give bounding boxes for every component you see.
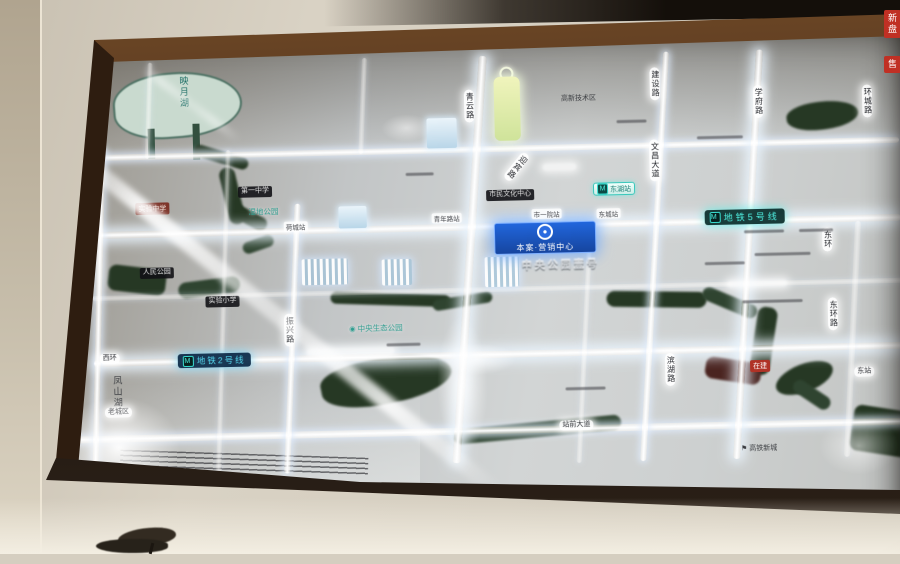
metro-icon: M bbox=[597, 183, 608, 194]
building-landmark bbox=[426, 118, 457, 149]
river-east bbox=[606, 291, 706, 308]
road-v-5 bbox=[640, 52, 669, 462]
district-pill: 老城区 bbox=[105, 407, 132, 418]
station-chip-label: 东湖站 bbox=[610, 183, 631, 193]
road-pill: 西环 bbox=[100, 354, 120, 365]
building-cluster bbox=[302, 258, 349, 285]
park-icon: ◉ bbox=[349, 324, 356, 333]
road-pill: 建设路 bbox=[649, 67, 660, 100]
building-cluster bbox=[338, 206, 366, 229]
embossed-project-name: 中央公园壹号 bbox=[522, 256, 600, 273]
poi-flag-label: ⚑ 高铁新城 bbox=[741, 443, 777, 454]
poi-text: 高铁新城 bbox=[749, 443, 777, 454]
road-pill: 站前大道 bbox=[559, 420, 593, 431]
metro-station-chip: M 东湖站 bbox=[593, 182, 635, 196]
road-pill: 学府路 bbox=[753, 85, 764, 118]
station-label: 市一院站 bbox=[531, 208, 561, 219]
bonsai-decoration bbox=[96, 539, 168, 553]
water-southeast bbox=[848, 404, 900, 459]
road-pill: 青云路 bbox=[464, 89, 475, 122]
photo-of-illuminated-map-display: M 地铁5号线 M 地铁2号线 M 东湖站 本案·营销中心 中央公园壹号 荷城站… bbox=[0, 0, 900, 554]
road-pill: 东环路 bbox=[828, 297, 839, 330]
corner-red-sign: 售 bbox=[884, 56, 900, 73]
project-badge: 本案·营销中心 bbox=[494, 221, 597, 255]
building-cluster bbox=[382, 259, 413, 286]
metro-icon: M bbox=[710, 212, 721, 223]
river-segment bbox=[241, 233, 275, 255]
poi-chip: 第一中学 bbox=[238, 186, 272, 198]
poi-chip: 实验小学 bbox=[205, 296, 239, 308]
text-smudge bbox=[406, 172, 434, 176]
road-pill: 环城路 bbox=[862, 84, 873, 117]
road-pill: 东站 bbox=[854, 366, 874, 377]
glass-reflection-streak bbox=[57, 137, 504, 500]
building-cluster bbox=[485, 256, 520, 287]
metro-icon: M bbox=[183, 355, 194, 366]
label-glow-row bbox=[542, 163, 576, 171]
road-pill: 迎宾路 bbox=[502, 151, 531, 183]
road-v-1 bbox=[216, 150, 231, 475]
flag-icon: ⚑ bbox=[741, 444, 747, 452]
station-label: 青年路站 bbox=[432, 213, 462, 224]
text-smudge bbox=[744, 229, 784, 233]
pond-northeast bbox=[785, 97, 860, 134]
label-glow-row bbox=[727, 279, 787, 287]
project-logo-icon bbox=[537, 223, 553, 239]
under-construction-chip: 在建 bbox=[750, 360, 770, 372]
station-label: 东城站 bbox=[596, 208, 620, 219]
text-smudge bbox=[743, 299, 803, 303]
poi-chip: 市民文化中心 bbox=[486, 189, 534, 201]
station-label: 荷城站 bbox=[284, 221, 308, 232]
text-smudge bbox=[616, 120, 646, 124]
road-pill: 文昌大道 bbox=[649, 139, 660, 181]
metro-line5-banner: M 地铁5号线 bbox=[705, 208, 785, 225]
text-smudge bbox=[386, 343, 420, 347]
central-park-label: ◉ 中央生态公园 bbox=[349, 322, 403, 334]
project-badge-title: 本案·营销中心 bbox=[516, 241, 574, 253]
text-smudge bbox=[755, 252, 811, 256]
text-smudge bbox=[705, 261, 745, 265]
road-pill: 滨湖路 bbox=[665, 353, 676, 386]
park-text: 湿地公园 bbox=[248, 206, 278, 218]
road-v-3 bbox=[358, 58, 367, 154]
metro-line2-banner: M 地铁2号线 bbox=[178, 353, 251, 369]
text-smudge bbox=[697, 135, 743, 139]
highlighted-tower bbox=[493, 76, 520, 141]
metro-line5-label: 地铁5号线 bbox=[724, 210, 780, 224]
poi-text: 高新技术区 bbox=[561, 93, 596, 104]
park-text: 中央生态公园 bbox=[358, 322, 403, 334]
hill-name: 凤山湖 bbox=[111, 375, 125, 408]
metro-line2-label: 地铁2号线 bbox=[197, 354, 246, 367]
text-smudge bbox=[566, 386, 606, 390]
corner-red-sign: 新盘 bbox=[884, 10, 900, 38]
wall-left-strip bbox=[0, 0, 42, 554]
poi-chip: 人民公园 bbox=[140, 267, 174, 279]
